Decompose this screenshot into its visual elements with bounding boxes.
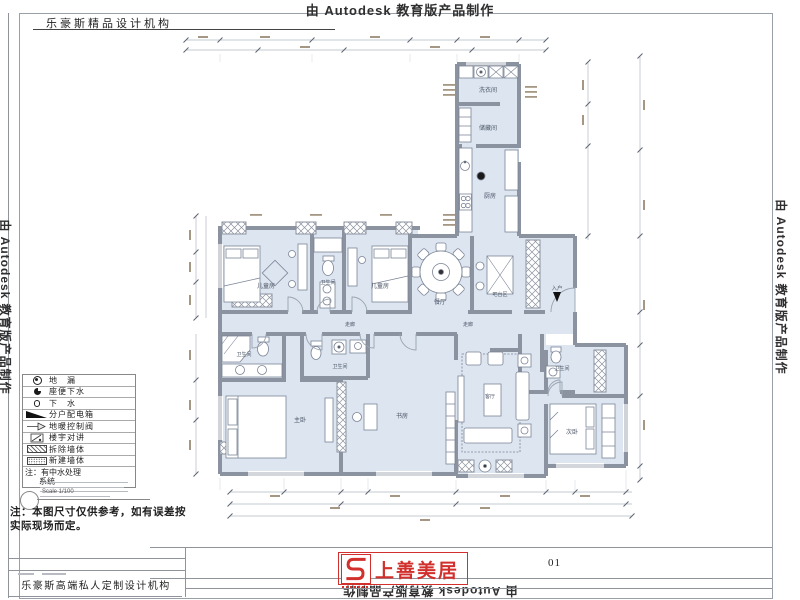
- room-label-kid1: 儿童房: [257, 282, 275, 290]
- room-label-kid2: 儿童房: [371, 282, 389, 290]
- room-label-corridor-2: 走廊: [463, 321, 473, 328]
- footer-left-rule: [8, 596, 182, 597]
- logo-mark-icon: [341, 554, 371, 584]
- power-distribution-box-icon: [25, 410, 49, 419]
- demolished-wall-icon: [25, 445, 49, 453]
- legend-row-drain: 下 水: [23, 398, 135, 410]
- footer-fine-print: [42, 573, 66, 575]
- room-label-bath-3: 卫生间: [554, 365, 569, 372]
- floor-heating-valve-icon: [25, 421, 49, 432]
- toilet-drain-icon: [25, 388, 49, 395]
- room-label-bath-upper: 卫生间: [320, 279, 335, 286]
- entry-label: 入户: [551, 284, 562, 292]
- footer-fine-print: [18, 573, 34, 575]
- fine-print-line: [40, 496, 110, 497]
- room-label-living: 客厅: [485, 393, 495, 400]
- room-label-corridor-1: 走廊: [345, 321, 355, 328]
- footer-divider: [185, 547, 186, 597]
- legend-row-power-box: 分户配电箱: [23, 410, 135, 422]
- building-intercom-icon: [25, 433, 49, 443]
- logo-dashes: [342, 586, 370, 588]
- room-label-dining: 餐厅: [434, 298, 446, 306]
- logo: 上善美居: [338, 550, 470, 588]
- legend-row-toilet-drain: 座便下水: [23, 387, 135, 399]
- scale-line: [37, 499, 150, 500]
- footer-rule: [185, 588, 772, 589]
- watermark-left: 由 Autodesk 教育版产品制作: [0, 197, 14, 417]
- floor-drain-icon: [25, 376, 49, 385]
- footer-left-rule: [8, 558, 185, 559]
- room-label-bar: 吧台区: [492, 291, 507, 298]
- legend-row-new-wall: 新建墙体: [23, 456, 135, 468]
- legend-note: 注：有中水处理 系统: [23, 467, 135, 487]
- room-label-bedroom2: 次卧: [566, 428, 578, 436]
- studio-title-bottom: 乐豪斯高端私人定制设计机构: [8, 577, 184, 592]
- room-label-laundry: 洗衣间: [479, 86, 497, 94]
- watermark-right: 由 Autodesk 教育版产品制作: [776, 177, 790, 397]
- drawing-sheet: { "watermarks": { "top": "由 Autodesk 教育版…: [0, 0, 800, 600]
- scale-label: Scale 1/100: [42, 489, 74, 495]
- fine-print-line: [40, 487, 124, 488]
- footer-left-rule: [8, 570, 185, 571]
- legend-row-floor-drain: 地 漏: [23, 375, 135, 387]
- legend-row-demolished-wall: 拆除墙体: [23, 444, 135, 456]
- new-wall-icon: [25, 457, 49, 465]
- legend-row-heating-valve: 地暖控制阀: [23, 421, 135, 433]
- page-number: 01: [548, 557, 561, 569]
- room-label-study: 书房: [396, 412, 408, 420]
- room-label-kitchen: 厨房: [484, 192, 496, 200]
- logo-text: 上善美居: [375, 556, 459, 583]
- legend-row-intercom: 楼宇对讲: [23, 433, 135, 445]
- room-label-bath-2: 卫生间: [332, 363, 347, 370]
- fine-print-line: [40, 482, 128, 483]
- legend-box: 地 漏 座便下水 下 水 分户配电箱 地暖控制阀 楼宇对讲: [22, 374, 136, 488]
- room-label-storage: 储藏间: [479, 124, 497, 132]
- room-label-master-bath: 卫生间: [236, 351, 251, 358]
- floor-plan-svg: 儿童房 卫生间 儿童房 洗衣间 储藏间 厨房 餐厅 吧台区 走廊 走廊 卫生间 …: [150, 28, 660, 528]
- room-label-master: 主卧: [294, 416, 306, 424]
- drain-icon: [25, 400, 49, 407]
- footer-rule: [150, 547, 772, 548]
